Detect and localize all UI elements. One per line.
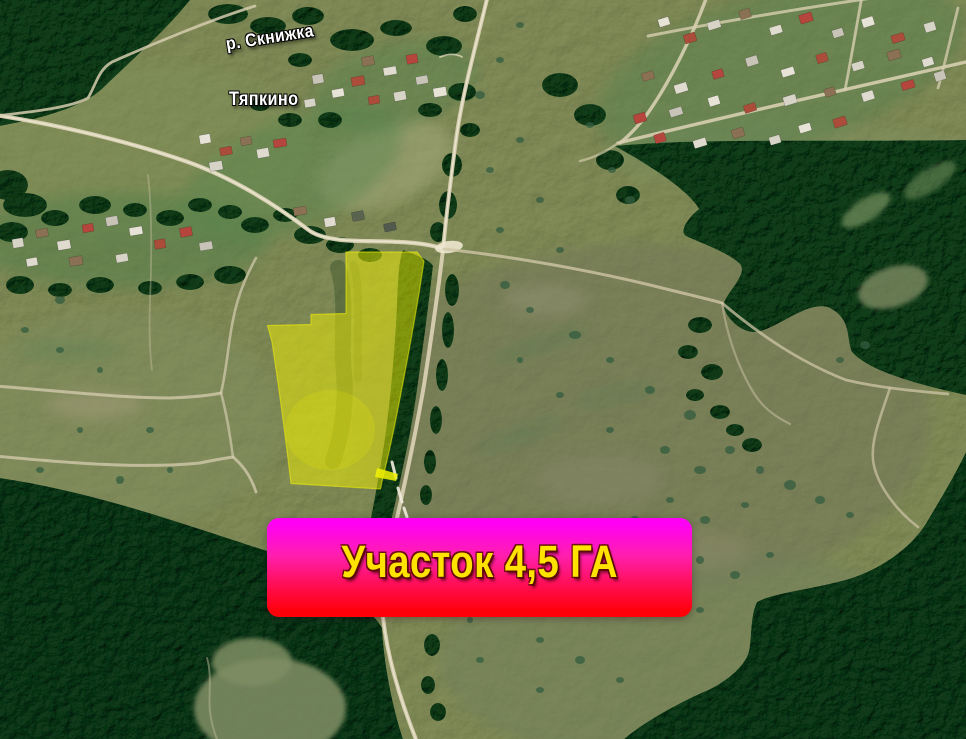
satellite-map-image [0,0,966,739]
map-canvas: р. Скнижка Тяпкино Участок 4,5 ГА [0,0,966,739]
village-label: Тяпкино [229,89,298,111]
plot-area-text: Участок 4,5 ГА [341,536,618,600]
photo-grain [0,0,966,739]
plot-area-banner: Участок 4,5 ГА [267,518,692,617]
